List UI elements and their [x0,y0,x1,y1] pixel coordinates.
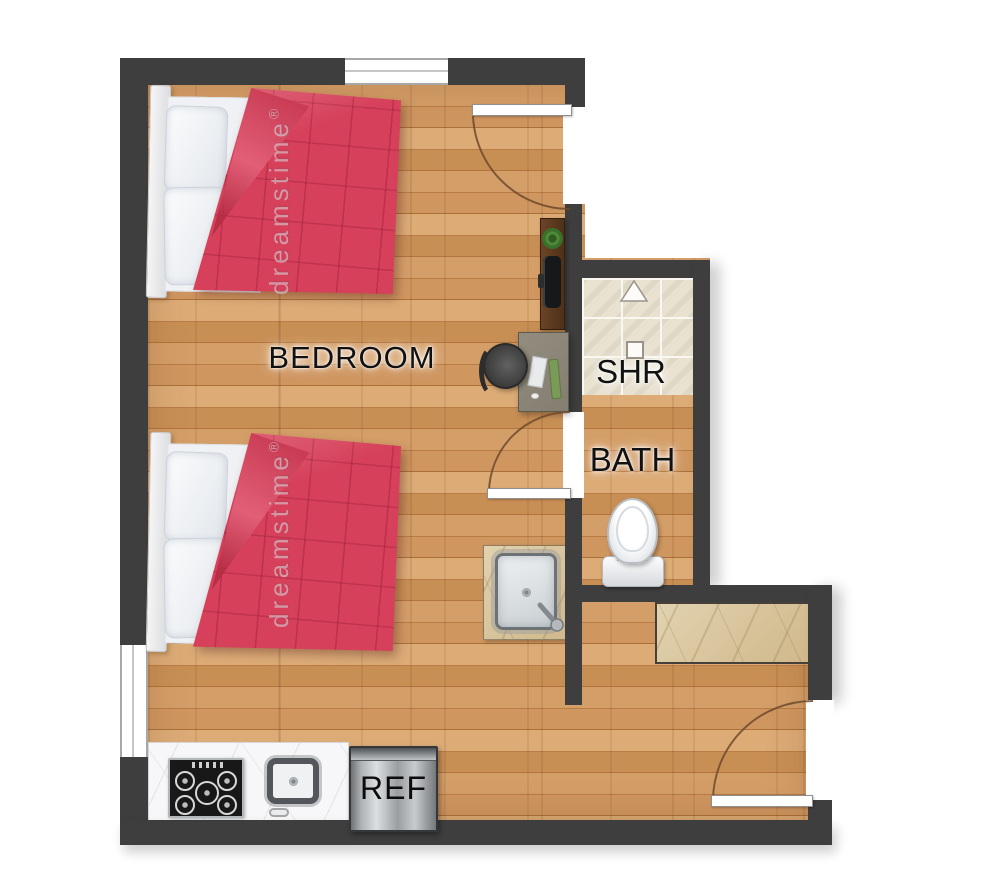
faucet-icon [540,605,555,622]
plan-overlay [0,0,1000,895]
shower-drain-square [627,342,643,358]
watermark-reg: ® [265,109,281,119]
entry-door-arc [473,116,570,209]
entry-door-panel [472,104,572,116]
shower-triangle-marker [621,281,647,301]
watermark-text: dreamstime [264,452,294,628]
watermark: dreamstime® [264,109,295,295]
watermark-text: dreamstime [264,119,294,295]
patio-door-arc [713,701,813,801]
watermark-reg: ® [265,442,281,452]
bath-door-arc [489,412,570,493]
bath-door-panel [487,488,571,499]
watermark: dreamstime® [264,442,295,628]
patio-door-panel [711,795,813,807]
floor-plan: REF BEDROOM SHR BATH dreamstime® dreamst… [0,0,1000,895]
faucet-base [551,619,563,631]
